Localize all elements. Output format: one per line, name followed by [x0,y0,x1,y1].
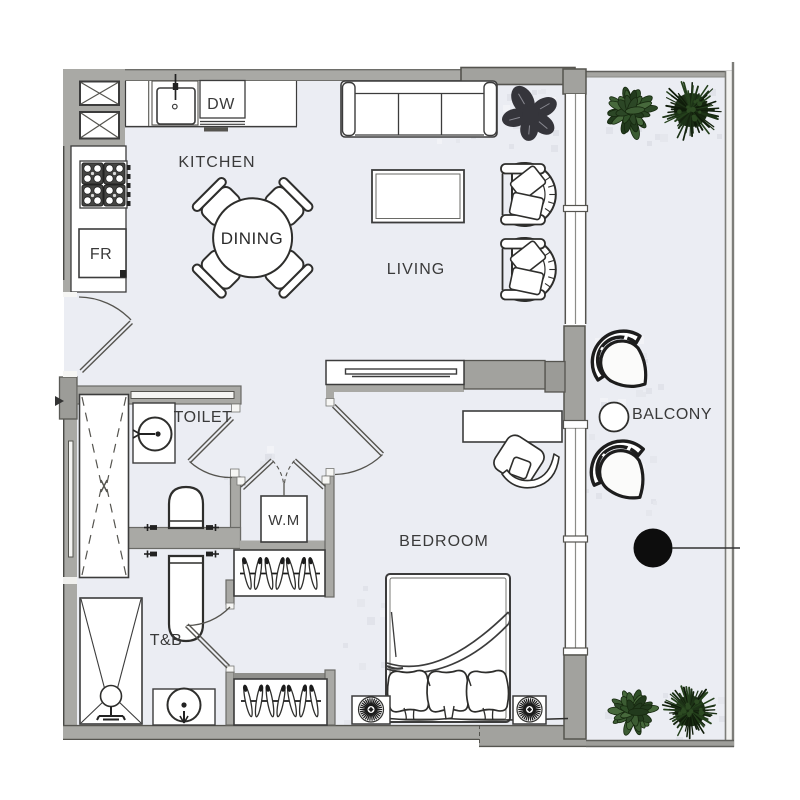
svg-text:BEDROOM: BEDROOM [399,533,489,550]
svg-text:DINING: DINING [221,229,284,248]
svg-text:FR: FR [90,246,112,263]
svg-text:LIVING: LIVING [387,261,445,278]
svg-text:DW: DW [207,96,235,113]
svg-text:W.M: W.M [268,512,300,529]
svg-text:BALCONY: BALCONY [632,406,712,423]
svg-text:TOILET: TOILET [174,409,233,426]
svg-text:KITCHEN: KITCHEN [178,154,255,171]
svg-text:T&B: T&B [150,632,183,649]
